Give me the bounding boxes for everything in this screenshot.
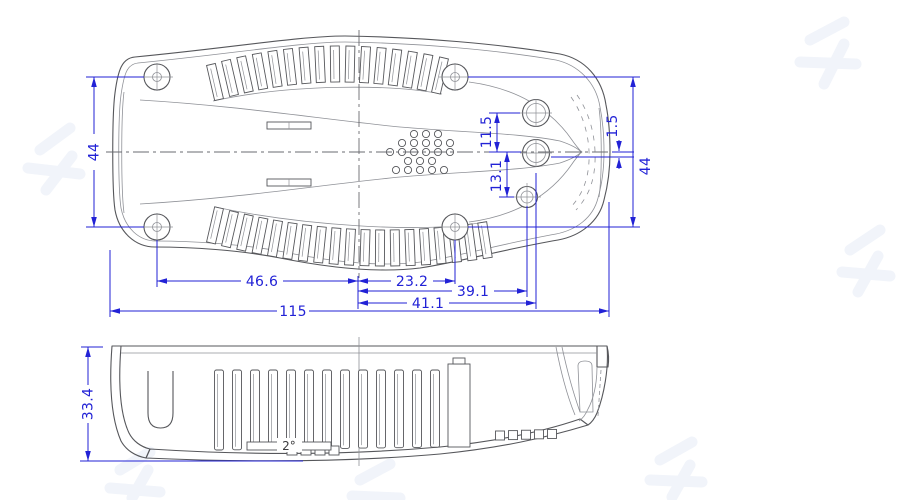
center-slots: [267, 122, 311, 186]
vent-slots-top: [207, 46, 449, 101]
side-view: 2° 33.4: [80, 337, 609, 466]
side-boss: [448, 358, 470, 447]
dim-boss-mid-offset: 1.5: [551, 114, 634, 169]
dim-boss-upper-offset: 11.5: [479, 113, 521, 152]
screw-hole: [141, 63, 173, 91]
dim-label-46-6: 46.6: [246, 274, 278, 290]
drawing-canvas: 44 44 11.5 13.1: [0, 0, 900, 500]
boss-middle: [520, 139, 552, 167]
mounting-bosses: [513, 99, 552, 211]
dim-label-23-2: 23.2: [396, 274, 428, 290]
dim-overall-length: 115: [110, 202, 609, 320]
side-ribs: [215, 370, 440, 450]
dim-label-41-1: 41.1: [412, 296, 444, 312]
dim-label-39-1: 39.1: [457, 284, 489, 300]
dim-label-11-5: 11.5: [479, 116, 495, 148]
dim-label-13-1: 13.1: [489, 160, 505, 192]
dimensions-top-view: 44 44 11.5 13.1: [86, 77, 654, 320]
top-view: 44 44 11.5 13.1: [86, 30, 654, 320]
boss-upper: [520, 99, 552, 127]
dim-label-33-4: 33.4: [81, 388, 97, 420]
engineering-drawing: 44 44 11.5 13.1: [0, 0, 900, 500]
dim-label-44-right: 44: [638, 157, 654, 175]
dim-label-115: 115: [279, 304, 307, 320]
dim-label-44-left: 44: [87, 143, 103, 161]
dim-label-1-5: 1.5: [605, 114, 621, 137]
dim-boss-lower-offset: 13.1: [489, 152, 514, 197]
screw-hole: [141, 213, 173, 241]
draft-angle-label: 2°: [282, 439, 296, 453]
